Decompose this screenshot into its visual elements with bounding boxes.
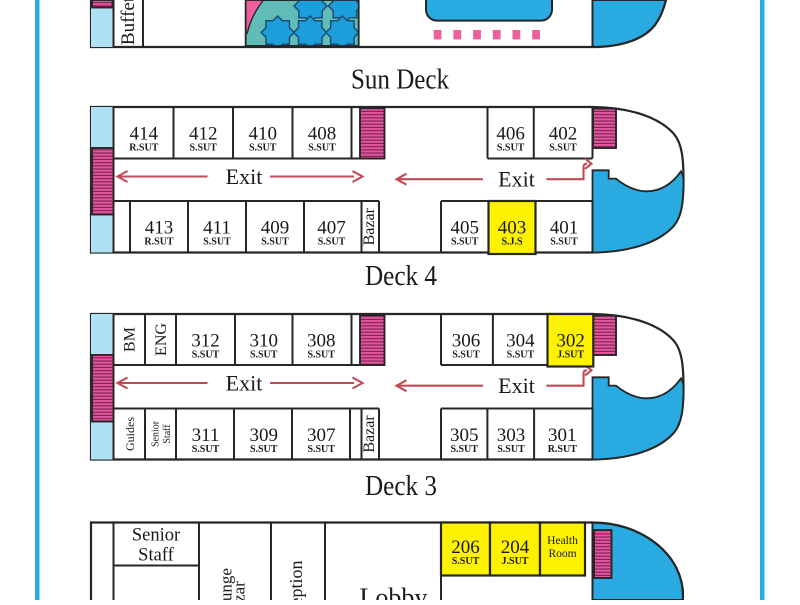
svg-text:Staff: Staff [162, 424, 173, 444]
svg-text:ENG: ENG [153, 323, 170, 356]
svg-text:S.SUT: S.SUT [250, 444, 278, 455]
svg-text:S.SUT: S.SUT [549, 143, 577, 154]
svg-text:R.SUT: R.SUT [129, 143, 159, 154]
svg-text:S.SUT: S.SUT [307, 350, 335, 361]
svg-text:403: 403 [498, 218, 527, 239]
svg-text:S.SUT: S.SUT [450, 444, 478, 455]
svg-text:S.SUT: S.SUT [550, 237, 578, 248]
svg-text:Bazar: Bazar [361, 207, 378, 245]
svg-text:S.SUT: S.SUT [497, 143, 525, 154]
svg-text:Guides: Guides [123, 417, 137, 451]
svg-text:Room: Room [548, 548, 576, 560]
svg-text:405: 405 [450, 218, 479, 239]
svg-text:402: 402 [549, 124, 578, 145]
svg-text:411: 411 [203, 218, 231, 239]
svg-text:J.SUT: J.SUT [502, 556, 529, 567]
svg-text:307: 307 [307, 425, 336, 446]
svg-text:Exit: Exit [498, 167, 535, 192]
svg-text:J.SUT: J.SUT [557, 350, 584, 361]
svg-text:Sun Deck: Sun Deck [351, 64, 449, 96]
svg-text:407: 407 [317, 218, 346, 239]
svg-text:Senior: Senior [132, 526, 180, 546]
svg-text:S.J.S: S.J.S [501, 237, 523, 248]
svg-text:Exit: Exit [226, 164, 263, 189]
svg-text:R.SUT: R.SUT [548, 444, 578, 455]
svg-text:S.SUT: S.SUT [452, 350, 480, 361]
svg-text:306: 306 [452, 331, 481, 352]
svg-text:S.SUT: S.SUT [249, 143, 277, 154]
svg-text:406: 406 [496, 124, 525, 145]
svg-text:S.SUT: S.SUT [318, 237, 346, 248]
svg-text:309: 309 [249, 425, 278, 446]
svg-text:S.SUT: S.SUT [308, 143, 336, 154]
svg-text:S.SUT: S.SUT [189, 143, 217, 154]
svg-text:Exit: Exit [498, 373, 535, 398]
svg-text:S.SUT: S.SUT [261, 237, 289, 248]
svg-text:Health: Health [547, 535, 578, 547]
svg-text:401: 401 [550, 218, 579, 239]
svg-text:S.SUT: S.SUT [307, 444, 335, 455]
svg-text:Bazar: Bazar [361, 415, 378, 453]
svg-text:206: 206 [451, 537, 480, 558]
svg-text:S.SUT: S.SUT [507, 350, 535, 361]
svg-text:BM: BM [122, 327, 139, 352]
svg-text:Staff: Staff [138, 546, 174, 566]
svg-text:305: 305 [450, 425, 479, 446]
svg-text:Exit: Exit [226, 370, 263, 395]
svg-text:308: 308 [307, 331, 336, 352]
svg-text:412: 412 [189, 124, 218, 145]
svg-text:Bazar: Bazar [230, 581, 249, 600]
svg-text:312: 312 [191, 331, 220, 352]
svg-text:Deck 4: Deck 4 [365, 260, 437, 292]
svg-text:408: 408 [308, 124, 337, 145]
svg-text:Senior: Senior [151, 420, 162, 447]
svg-text:Buffet: Buffet [118, 0, 139, 45]
svg-text:S.SUT: S.SUT [192, 350, 220, 361]
svg-text:410: 410 [248, 124, 277, 145]
svg-text:301: 301 [548, 425, 577, 446]
svg-text:S.SUT: S.SUT [192, 444, 220, 455]
svg-text:S.SUT: S.SUT [203, 237, 231, 248]
svg-text:311: 311 [192, 425, 220, 446]
svg-text:204: 204 [501, 537, 530, 558]
svg-text:Deck 3: Deck 3 [365, 470, 437, 502]
svg-text:303: 303 [497, 425, 526, 446]
svg-text:310: 310 [249, 331, 278, 352]
svg-text:R.SUT: R.SUT [144, 237, 174, 248]
svg-text:414: 414 [130, 124, 159, 145]
svg-text:Lobby: Lobby [360, 583, 428, 600]
svg-text:413: 413 [145, 218, 174, 239]
svg-text:304: 304 [506, 331, 535, 352]
svg-text:Reception: Reception [286, 561, 306, 600]
svg-text:S.SUT: S.SUT [497, 444, 525, 455]
svg-text:S.SUT: S.SUT [452, 556, 480, 567]
svg-text:302: 302 [556, 331, 585, 352]
svg-text:S.SUT: S.SUT [451, 237, 479, 248]
svg-text:409: 409 [261, 218, 290, 239]
svg-text:S.SUT: S.SUT [250, 350, 278, 361]
